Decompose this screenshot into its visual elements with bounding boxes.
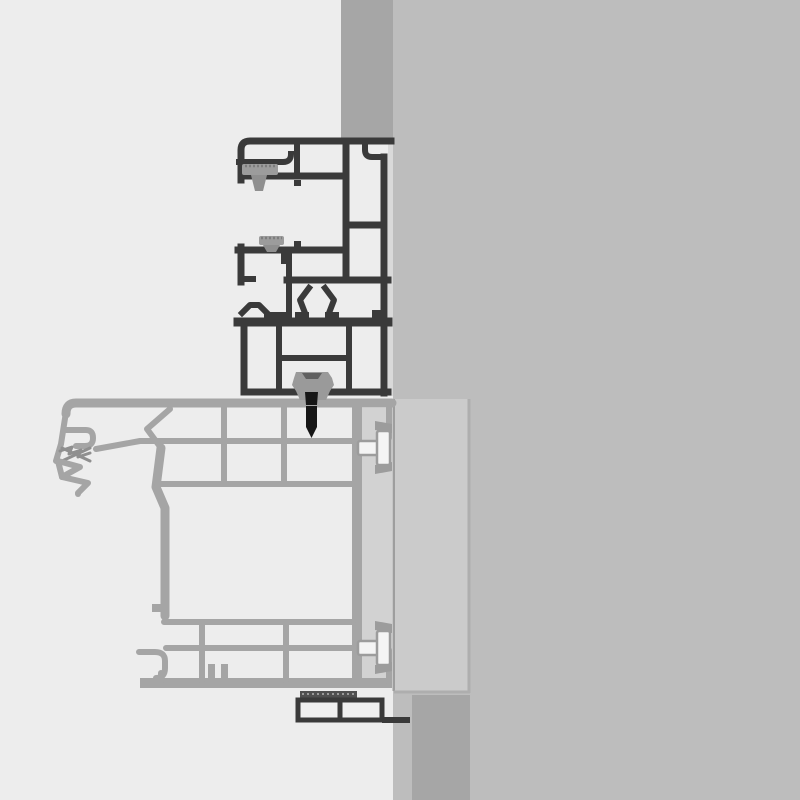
frame-left-nub <box>152 604 164 612</box>
insulation-panel <box>395 399 469 691</box>
addon-foot-nub <box>372 310 382 318</box>
anchor-head <box>377 631 390 665</box>
clip-tip <box>305 392 318 405</box>
screw-channel-tick <box>294 180 301 186</box>
window-section-drawing <box>0 0 800 800</box>
wall-reveal-strip-bottom <box>412 695 470 800</box>
frame-wall-seam <box>388 138 393 396</box>
frame-comb-tooth <box>208 664 215 678</box>
screw-channel-tick <box>294 241 301 247</box>
frame-comb-tooth <box>221 664 228 678</box>
cad-drawing-canvas <box>0 0 800 800</box>
screw-shaft <box>306 406 317 427</box>
wall-reveal-strip-top <box>341 0 393 139</box>
anchor-head <box>377 431 390 465</box>
